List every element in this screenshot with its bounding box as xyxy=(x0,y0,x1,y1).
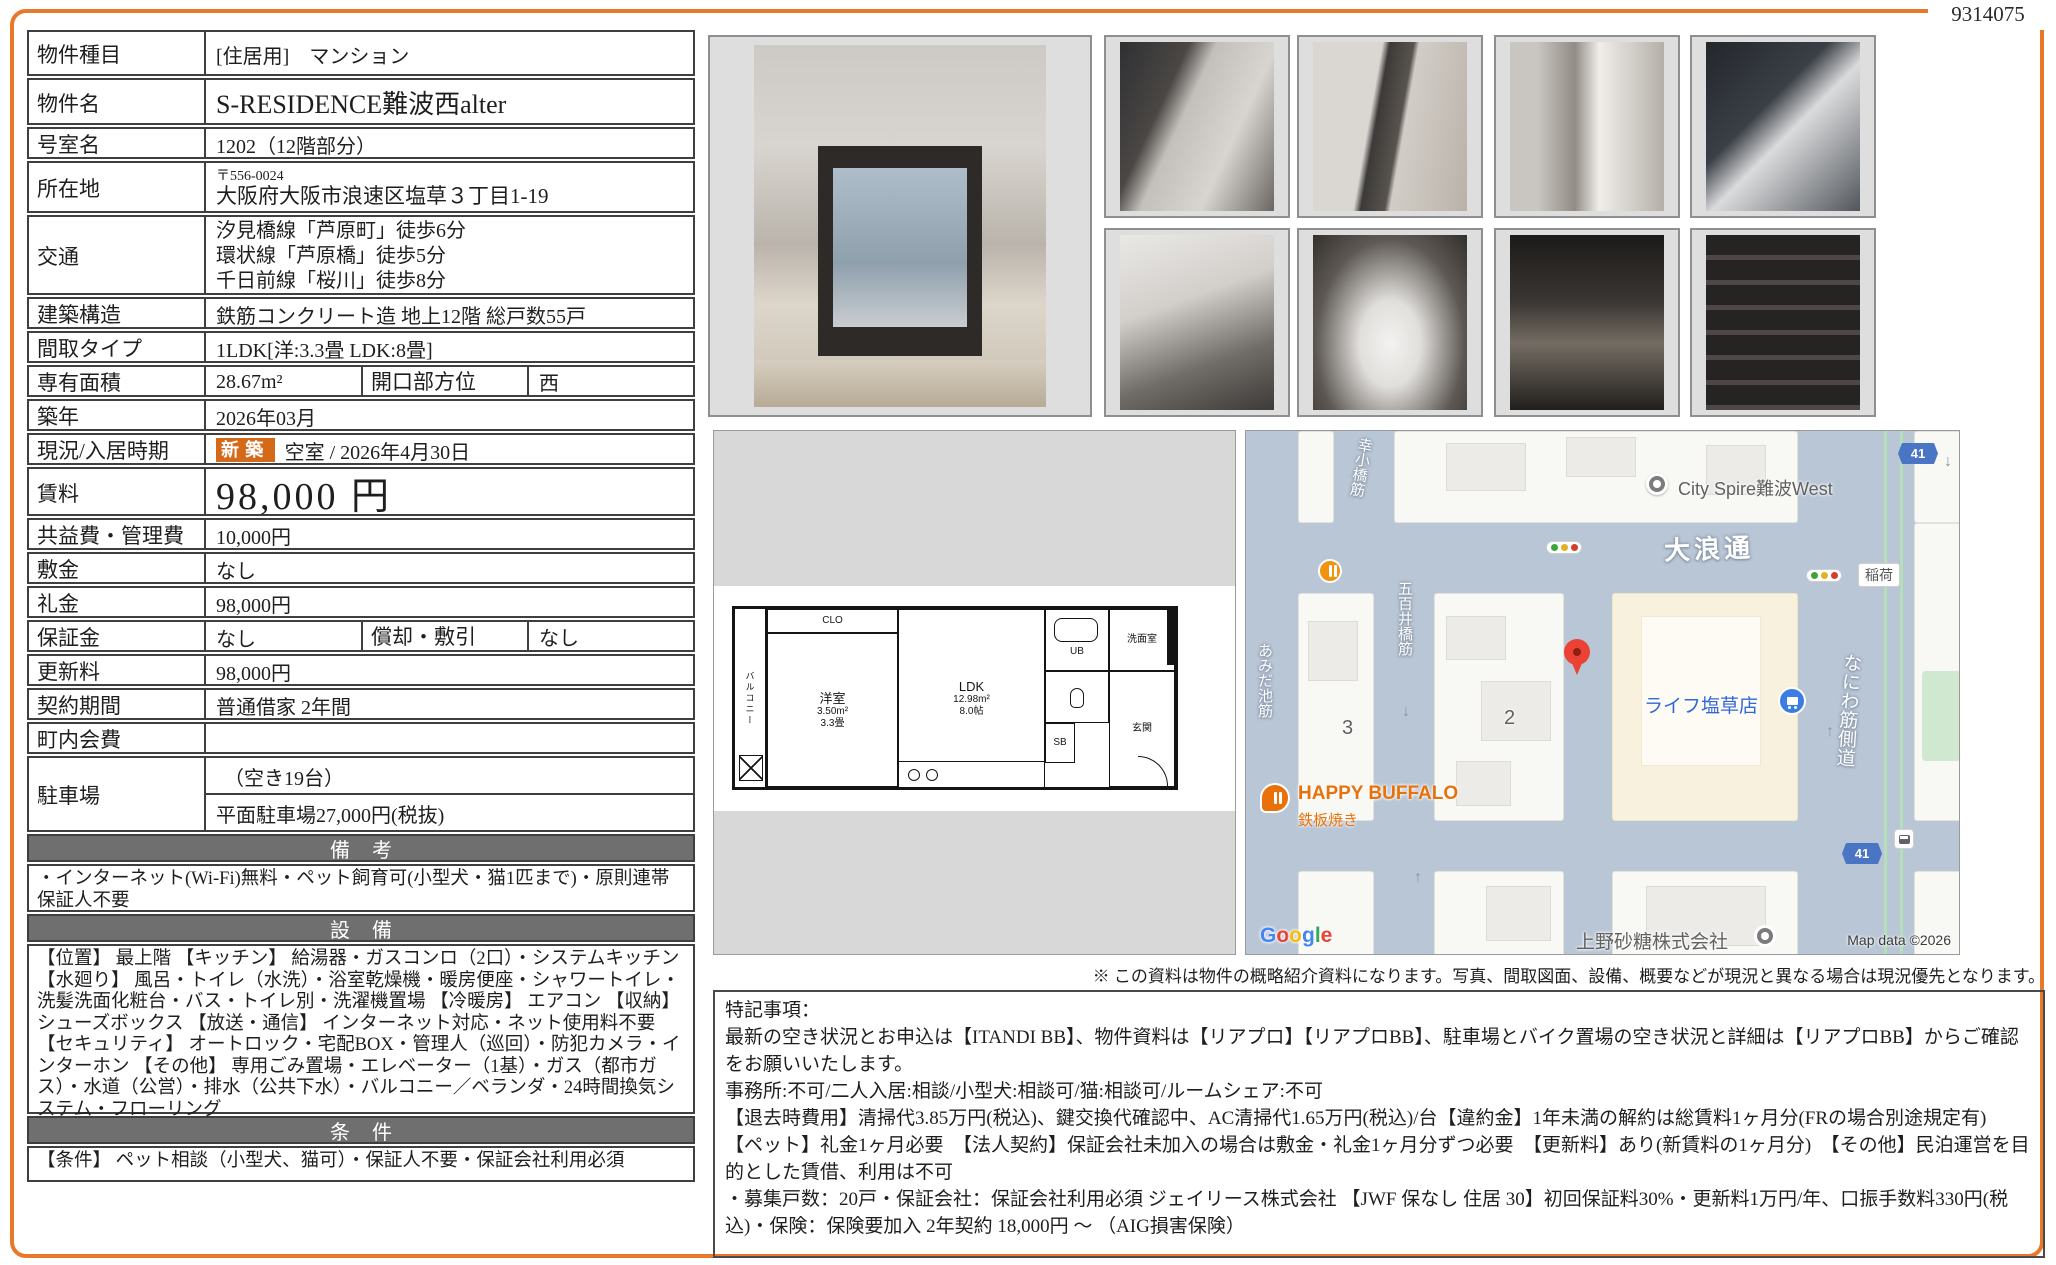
one-way-arrow-icon: ↓ xyxy=(1402,703,1410,721)
one-way-arrow-icon: ↑ xyxy=(1826,723,1834,741)
special-notes: 特記事項： 最新の空き状況とお申込は【ITANDI BB】、物件資料は【リアプロ… xyxy=(713,990,2045,1258)
poi-city-spire: City Spire難波West xyxy=(1678,475,1833,501)
street-naniwa-suji: なにわ筋側道 xyxy=(1830,652,1865,768)
table-row: 物件種目[住居用] マンション xyxy=(27,30,695,76)
location-map: 大浪通 なにわ筋側道 幸小橋筋 五百井橋筋 あみだ池筋 41 41 稲荷 ↓ ↑… xyxy=(1245,430,1960,955)
photo-dark-corridor xyxy=(1494,228,1680,417)
poi-life-store: ライフ塩草店 xyxy=(1644,691,1758,718)
property-sheet: 9314075 物件種目[住居用] マンション 物件名S-RESIDENCE難波… xyxy=(0,0,2056,1265)
route-41-shield-bottom: 41 xyxy=(1842,843,1882,864)
stop-inari: 稲荷 xyxy=(1858,563,1900,587)
photo-washbasin xyxy=(1690,35,1876,218)
photo-toilet xyxy=(1297,228,1483,417)
poi-ueno-sugar: 上野砂糖株式会社 xyxy=(1576,927,1728,954)
stove-burner-icon xyxy=(908,769,920,781)
route-41-shield-top: 41 xyxy=(1898,443,1938,464)
table-row: 所在地 〒556-0024大阪府大阪市浪速区塩草３丁目1-19 xyxy=(27,161,695,213)
one-way-arrow-icon: ↑ xyxy=(1414,869,1422,887)
escape-hatch-icon xyxy=(739,755,763,781)
section-header-equipment: 設備 xyxy=(27,914,695,942)
bus-stop-icon xyxy=(1894,829,1914,849)
table-row: 号室名1202（12階部分） xyxy=(27,127,695,159)
door-swing-icon xyxy=(1138,756,1168,786)
one-way-arrow-icon: ↓ xyxy=(1944,453,1952,471)
table-row: 建築構造鉄筋コンクリート造 地上12階 総戸数55戸 xyxy=(27,297,695,329)
table-row: 物件名S-RESIDENCE難波西alter xyxy=(27,78,695,125)
floorplan-washroom: 洗面室 xyxy=(1109,609,1175,671)
property-location-pin xyxy=(1564,639,1590,677)
floorplan-unit-bath: UB xyxy=(1045,609,1109,671)
postal-code: 〒556-0024 xyxy=(216,169,284,184)
city-spire-poi-icon xyxy=(1646,473,1668,495)
google-logo: Google xyxy=(1260,924,1332,948)
special-notes-paragraph: 最新の空き状況とお申込は【ITANDI BB】、物件資料は【リアプロ】【リアプロ… xyxy=(725,1024,2033,1078)
table-row: 敷金なし xyxy=(27,552,695,584)
floorplan-shoebox: SB xyxy=(1045,723,1075,763)
happy-buffalo-pin-icon xyxy=(1260,783,1290,813)
property-table: 物件種目[住居用] マンション 物件名S-RESIDENCE難波西alter 号… xyxy=(27,30,695,1182)
floorplan-western-room: 洋室 3.50m² 3.3畳 xyxy=(767,633,898,787)
table-row: 契約期間普通借家 2年間 xyxy=(27,688,695,720)
address: 大阪府大阪市浪速区塩草３丁目1-19 xyxy=(216,184,549,208)
photo-closet-hallway xyxy=(1494,35,1680,218)
photo-living-room-main xyxy=(708,35,1092,417)
special-notes-paragraph: ・募集戸数：20戸・保証会社：保証会社利用必須 ジェイリース株式会社 【JWF … xyxy=(725,1186,2033,1240)
section-header-remarks: 備考 xyxy=(27,834,695,862)
special-notes-paragraph: 【退去時費用】清掃代3.85万円(税込)、鍵交換代確認中、AC清掃代1.65万円… xyxy=(725,1105,2033,1186)
block-number-3: 3 xyxy=(1342,717,1353,740)
photo-bathroom xyxy=(1104,228,1290,417)
remarks-text: ・インターネット(Wi-Fi)無料・ペット飼育可(小型犬・猫1匹まで)・原則連帯… xyxy=(29,866,693,910)
street-ioibashi-suji: 五百井橋筋 xyxy=(1394,581,1415,656)
photo-kitchen xyxy=(1104,35,1290,218)
table-row: 現況/入居時期 新築空室 / 2026年4月30日 xyxy=(27,433,695,465)
poi-teppanyaki: 鉄板焼き xyxy=(1298,809,1358,830)
table-row: 【位置】 最上階 【キッチン】 給湯器・ガスコンロ（2口）・システムキッチン 【… xyxy=(27,944,695,1114)
parking-price: 平面駐車場27,000円(税抜) xyxy=(206,795,693,830)
floorplan-drawing: バルコニー CLO 洋室 3.50m² 3.3畳 LDK 12.98m² 8.0… xyxy=(732,606,1178,790)
table-row: 築年2026年03月 xyxy=(27,399,695,431)
table-row: 保証金なし償却・敷引なし xyxy=(27,620,695,652)
property-name: S-RESIDENCE難波西alter xyxy=(206,80,693,123)
table-row: 【条件】 ペット相談（小型犬、猫可）・保証人不要・保証会社利用必須 xyxy=(27,1146,695,1182)
traffic-light-icon xyxy=(1546,541,1582,554)
poi-happy-buffalo: HAPPY BUFFALO xyxy=(1298,783,1458,805)
table-row: 賃料98,000 円 xyxy=(27,467,695,516)
ueno-poi-icon xyxy=(1754,925,1776,947)
floorplan-entrance: 玄関 xyxy=(1109,671,1175,787)
bathtub-icon xyxy=(1054,618,1098,642)
stove-burner-icon xyxy=(926,769,938,781)
special-notes-title: 特記事項： xyxy=(725,997,2033,1024)
floorplan: バルコニー CLO 洋室 3.50m² 3.3畳 LDK 12.98m² 8.0… xyxy=(713,430,1236,955)
restaurant-dot-icon xyxy=(1318,559,1342,583)
table-row: 間取タイプ1LDK[洋:3.3畳 LDK:8畳] xyxy=(27,331,695,363)
street-onami-dori: 大浪通 xyxy=(1663,527,1754,567)
supermarket-icon xyxy=(1778,687,1806,715)
document-number: 9314075 xyxy=(1928,0,2048,30)
disclaimer-note: ※ この資料は物件の概略紹介資料になります。写真、間取図面、設備、概要などが現況… xyxy=(713,962,2045,987)
table-row: 駐車場 （空き19台） 平面駐車場27,000円(税抜) xyxy=(27,756,695,832)
street-amidaike-suji: あみだ池筋 xyxy=(1254,643,1275,718)
table-row: 礼金98,000円 xyxy=(27,586,695,618)
table-row: 交通 汐見橋線「芦原町」徒歩6分 環状線「芦原橋」徒歩5分 千日前線「桜川」徒歩… xyxy=(27,215,695,295)
photo-room-sliding-door xyxy=(1297,35,1483,218)
conditions-text: 【条件】 ペット相談（小型犬、猫可）・保証人不要・保証会社利用必須 xyxy=(29,1148,632,1180)
floorplan-toilet xyxy=(1045,671,1109,723)
table-row: 専有面積28.67m²開口部方位西 xyxy=(27,365,695,397)
toilet-icon xyxy=(1070,688,1084,708)
floorplan-kitchen xyxy=(898,761,1045,787)
table-row: ・インターネット(Wi-Fi)無料・ペット飼育可(小型犬・猫1匹まで)・原則連帯… xyxy=(27,864,695,912)
equipment-text: 【位置】 最上階 【キッチン】 給湯器・ガスコンロ（2口）・システムキッチン 【… xyxy=(29,946,693,1112)
table-row: 町内会費 xyxy=(27,722,695,754)
block-number-2: 2 xyxy=(1504,707,1515,730)
new-build-badge: 新築 xyxy=(216,438,275,462)
street-saikobashi-suji: 幸小橋筋 xyxy=(1345,436,1376,499)
floorplan-closet: CLO xyxy=(767,609,898,633)
table-row: 共益費・管理費10,000円 xyxy=(27,518,695,550)
floorplan-balcony: バルコニー xyxy=(735,609,767,787)
map-copyright: Map data ©2026 xyxy=(1847,932,1951,948)
table-row: 更新料98,000円 xyxy=(27,654,695,686)
traffic-light-icon xyxy=(1806,569,1842,582)
photo-shoe-shelf xyxy=(1690,228,1876,417)
parking-availability: （空き19台） xyxy=(206,758,693,795)
special-notes-paragraph: 事務所:不可/二人入居:相談/小型犬:相談可/猫:相談可/ルームシェア:不可 xyxy=(725,1078,2033,1105)
rent-amount: 98,000 円 xyxy=(206,469,693,514)
